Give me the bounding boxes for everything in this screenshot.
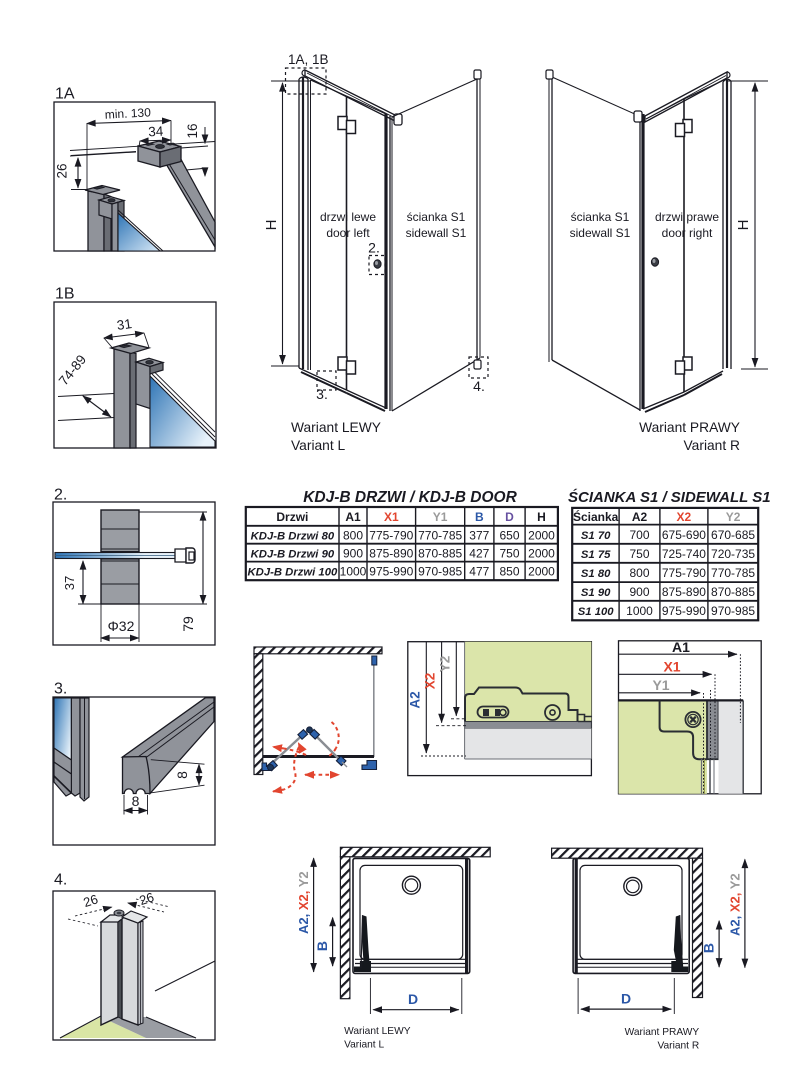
- svg-text:1A, 1B: 1A, 1B: [288, 52, 329, 67]
- svg-text:31: 31: [116, 316, 133, 333]
- svg-text:770-785: 770-785: [711, 566, 755, 580]
- svg-text:X1: X1: [384, 510, 399, 524]
- svg-text:X2: X2: [677, 510, 692, 524]
- svg-text:ścianka S1: ścianka S1: [571, 210, 630, 224]
- svg-text:KDJ-B DRZWI / KDJ-B DOOR: KDJ-B DRZWI / KDJ-B DOOR: [303, 489, 517, 506]
- svg-text:Variant L: Variant L: [291, 438, 346, 453]
- svg-text:KDJ-B Drzwi 100: KDJ-B Drzwi 100: [248, 567, 338, 579]
- svg-text:377: 377: [469, 529, 489, 543]
- svg-text:H: H: [537, 510, 546, 524]
- svg-text:S1 70: S1 70: [581, 530, 611, 542]
- svg-text:Y2: Y2: [726, 510, 741, 524]
- svg-text:Φ32: Φ32: [108, 618, 135, 634]
- svg-text:970-985: 970-985: [418, 565, 462, 579]
- svg-text:Y1: Y1: [433, 510, 448, 524]
- svg-text:Wariant PRAWY: Wariant PRAWY: [625, 1027, 700, 1038]
- svg-text:900: 900: [343, 547, 363, 561]
- svg-text:725-740: 725-740: [662, 547, 706, 561]
- svg-text:D: D: [408, 991, 418, 1007]
- svg-text:775-790: 775-790: [369, 529, 413, 543]
- svg-text:870-885: 870-885: [711, 585, 755, 599]
- svg-text:B: B: [314, 941, 330, 951]
- svg-text:A1: A1: [672, 639, 690, 655]
- svg-text:675-690: 675-690: [662, 528, 706, 542]
- svg-text:1000: 1000: [340, 565, 367, 579]
- svg-text:37: 37: [62, 576, 77, 590]
- svg-text:970-985: 970-985: [711, 604, 755, 618]
- svg-text:S1 80: S1 80: [581, 568, 611, 580]
- svg-text:2000: 2000: [528, 547, 555, 561]
- svg-text:A2, X2, Y2: A2, X2, Y2: [728, 873, 743, 936]
- svg-text:8: 8: [174, 771, 190, 779]
- svg-text:H: H: [735, 220, 752, 231]
- svg-text:sidewall S1: sidewall S1: [406, 226, 467, 240]
- svg-text:670-685: 670-685: [711, 528, 755, 542]
- svg-text:26: 26: [55, 163, 70, 178]
- svg-text:750: 750: [499, 547, 519, 561]
- svg-text:Wariant LEWY: Wariant LEWY: [344, 1026, 411, 1037]
- svg-text:D: D: [505, 510, 514, 524]
- svg-text:Variant R: Variant R: [684, 438, 741, 453]
- svg-text:A2, X2, Y2: A2, X2, Y2: [296, 871, 311, 934]
- svg-text:900: 900: [629, 585, 649, 599]
- svg-text:B: B: [701, 943, 717, 953]
- svg-text:800: 800: [343, 529, 363, 543]
- svg-text:H: H: [263, 220, 280, 231]
- svg-text:drzwi lewe: drzwi lewe: [320, 210, 376, 224]
- svg-text:X2: X2: [423, 673, 438, 690]
- svg-text:16: 16: [185, 123, 200, 138]
- svg-text:D: D: [621, 991, 631, 1007]
- svg-text:975-990: 975-990: [662, 604, 706, 618]
- svg-text:drzwi prawe: drzwi prawe: [655, 210, 719, 224]
- svg-text:KDJ-B Drzwi 90: KDJ-B Drzwi 90: [251, 549, 335, 561]
- svg-text:X1: X1: [663, 659, 680, 675]
- svg-text:1000: 1000: [626, 604, 653, 618]
- svg-text:4.: 4.: [54, 872, 67, 889]
- svg-text:Y2: Y2: [438, 656, 453, 673]
- svg-text:477: 477: [469, 565, 489, 579]
- svg-text:775-790: 775-790: [662, 566, 706, 580]
- svg-text:KDJ-B Drzwi 80: KDJ-B Drzwi 80: [251, 531, 335, 543]
- svg-text:34: 34: [148, 124, 164, 140]
- svg-text:B: B: [475, 510, 484, 524]
- svg-text:975-990: 975-990: [369, 565, 413, 579]
- svg-text:1B: 1B: [55, 286, 75, 303]
- svg-text:770-785: 770-785: [418, 529, 462, 543]
- svg-text:850: 850: [499, 565, 519, 579]
- svg-text:700: 700: [629, 528, 649, 542]
- svg-text:Variant R: Variant R: [657, 1041, 699, 1052]
- svg-text:2.: 2.: [368, 240, 380, 256]
- svg-text:2.: 2.: [54, 487, 67, 504]
- svg-text:3.: 3.: [54, 681, 67, 698]
- svg-text:Ścianka: Ścianka: [573, 509, 619, 524]
- svg-text:ŚCIANKA S1 / SIDEWALL S1: ŚCIANKA S1 / SIDEWALL S1: [568, 488, 771, 506]
- svg-text:2000: 2000: [528, 565, 555, 579]
- svg-text:1A: 1A: [55, 86, 75, 103]
- svg-text:3.: 3.: [316, 386, 328, 402]
- svg-text:4.: 4.: [473, 378, 485, 394]
- svg-text:875-890: 875-890: [369, 547, 413, 561]
- svg-text:Wariant LEWY: Wariant LEWY: [291, 420, 381, 435]
- svg-text:door right: door right: [662, 226, 713, 240]
- svg-text:min. 130: min. 130: [104, 105, 151, 121]
- svg-text:427: 427: [469, 547, 489, 561]
- svg-text:650: 650: [499, 529, 519, 543]
- svg-text:800: 800: [629, 566, 649, 580]
- svg-text:A1: A1: [345, 510, 361, 524]
- svg-text:S1 100: S1 100: [578, 606, 615, 618]
- svg-text:S1 75: S1 75: [581, 549, 611, 561]
- svg-text:A2: A2: [632, 510, 648, 524]
- svg-text:720-735: 720-735: [711, 547, 755, 561]
- svg-text:Variant L: Variant L: [344, 1040, 384, 1051]
- svg-text:750: 750: [629, 547, 649, 561]
- svg-text:Y1: Y1: [652, 677, 669, 693]
- svg-text:door left: door left: [326, 226, 370, 240]
- svg-text:79: 79: [180, 616, 196, 632]
- svg-text:sidewall S1: sidewall S1: [570, 226, 631, 240]
- svg-text:A2: A2: [408, 691, 423, 708]
- svg-text:870-885: 870-885: [418, 547, 462, 561]
- svg-text:Drzwi: Drzwi: [276, 510, 308, 524]
- svg-text:2000: 2000: [528, 529, 555, 543]
- svg-text:875-890: 875-890: [662, 585, 706, 599]
- svg-text:Wariant PRAWY: Wariant PRAWY: [639, 420, 740, 435]
- svg-text:8: 8: [132, 793, 140, 809]
- svg-text:ścianka S1: ścianka S1: [407, 210, 466, 224]
- svg-text:S1 90: S1 90: [581, 587, 611, 599]
